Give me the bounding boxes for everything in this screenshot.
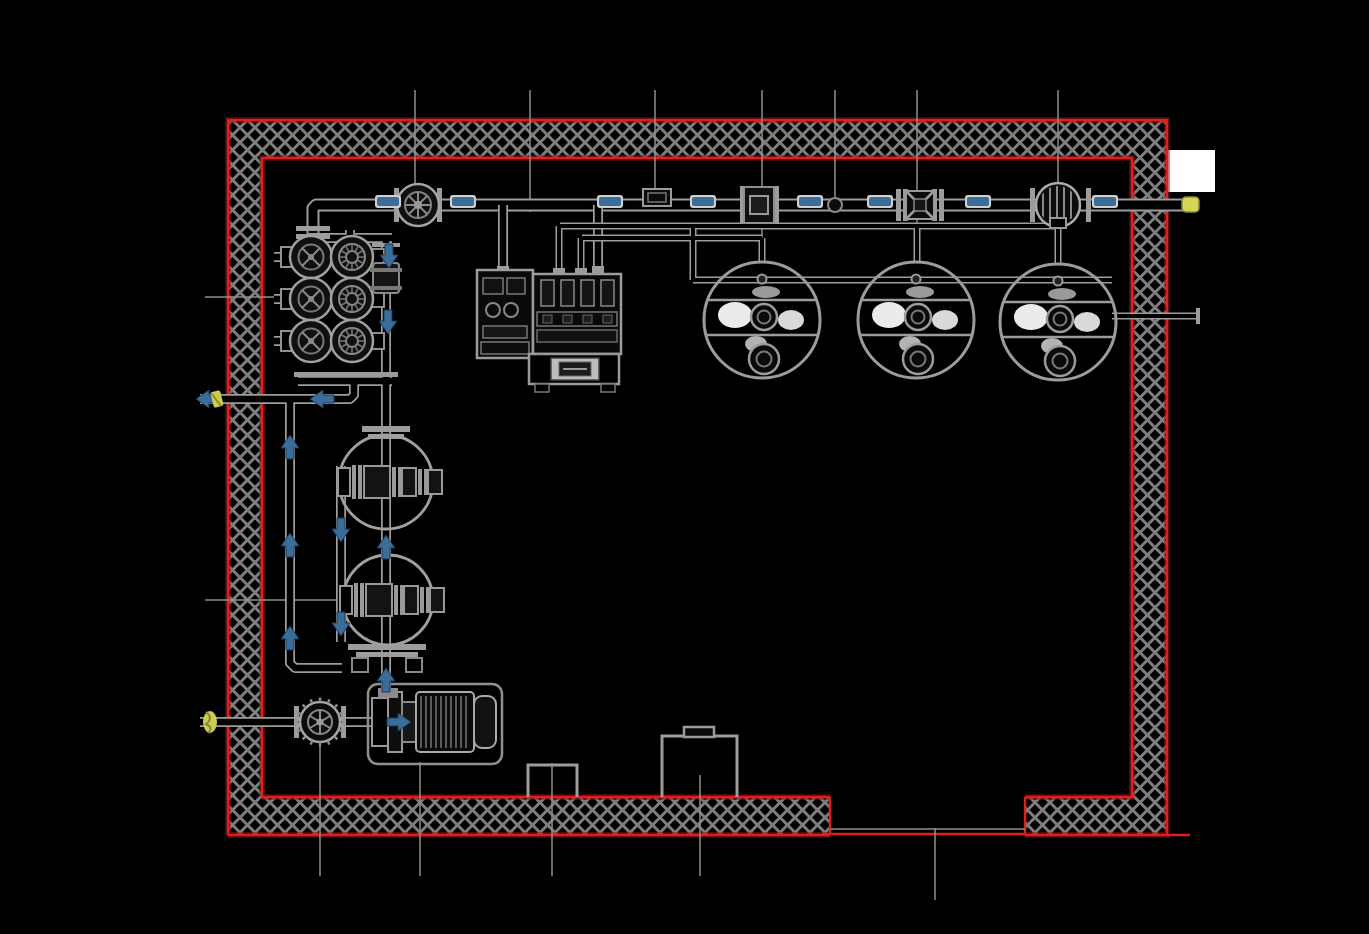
- gate-valve-handwheel: [397, 184, 439, 226]
- inline-instrument: [643, 189, 671, 206]
- flow-dash: [867, 195, 893, 208]
- yellow-cap-right-exit: [1182, 197, 1199, 212]
- tank-2: [858, 262, 974, 378]
- flow-dash: [690, 195, 716, 208]
- drawing-page: [0, 0, 1369, 934]
- flow-dash: [450, 195, 476, 208]
- vessel-flange-row-upper: [338, 465, 442, 499]
- flow-dash: [797, 195, 823, 208]
- yellow-tag-left-lower: [203, 711, 217, 733]
- vessel-flange-row-lower: [340, 583, 444, 617]
- plan-drawing-svg: [0, 0, 1369, 934]
- flow-dash: [1092, 195, 1118, 208]
- flanged-valve-spool: [744, 187, 774, 223]
- strainer-meter: [1036, 183, 1080, 228]
- flow-dash: [965, 195, 991, 208]
- manifold-riser-valve: [370, 263, 402, 293]
- weld-point-dot: [828, 198, 842, 212]
- valve-manifold: [281, 236, 384, 362]
- flow-dash: [375, 195, 401, 208]
- tank-3: [1000, 264, 1116, 380]
- tank-1: [704, 262, 820, 378]
- flow-dash: [597, 195, 623, 208]
- white-artifact-patch: [1168, 150, 1215, 192]
- suction-valve: [296, 698, 345, 747]
- cross-gate-valve: [906, 191, 934, 219]
